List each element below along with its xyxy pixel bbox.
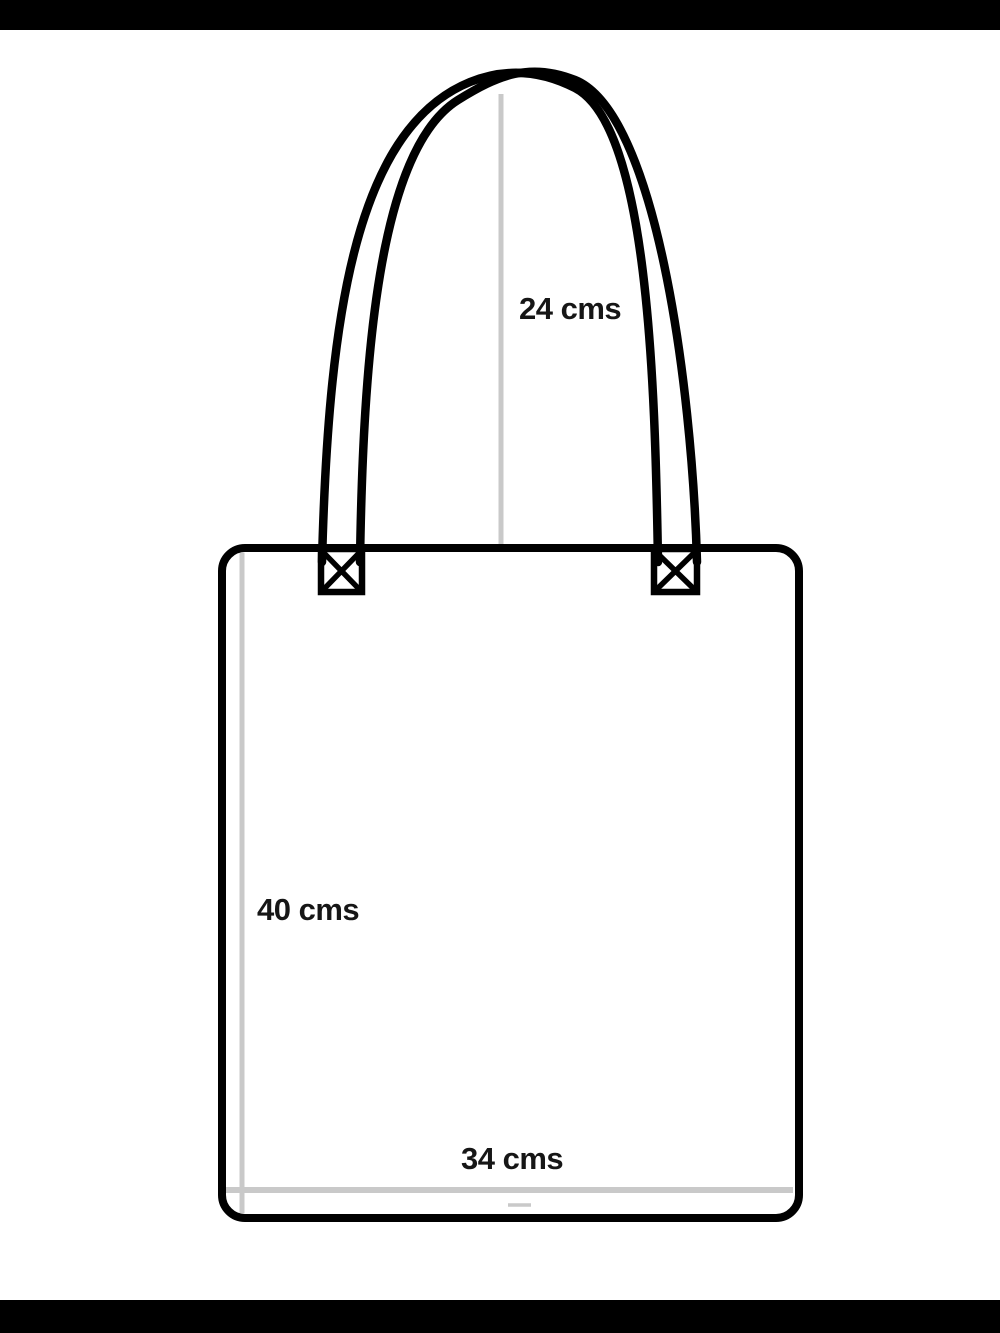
tote-bag-diagram-page: 24 cms 40 cms 34 cms — [0, 0, 1000, 1333]
handle-height-label: 24 cms — [519, 293, 621, 324]
bag-height-label: 40 cms — [257, 894, 359, 925]
bag-body-outline — [222, 548, 799, 1218]
tote-bag-diagram — [0, 0, 1000, 1333]
left-strap-attachment-square — [321, 549, 362, 592]
bottom-letterbox-bar — [0, 1300, 1000, 1333]
bag-width-label: 34 cms — [461, 1143, 563, 1174]
top-letterbox-bar — [0, 0, 1000, 30]
right-strap-attachment-square — [654, 549, 697, 592]
